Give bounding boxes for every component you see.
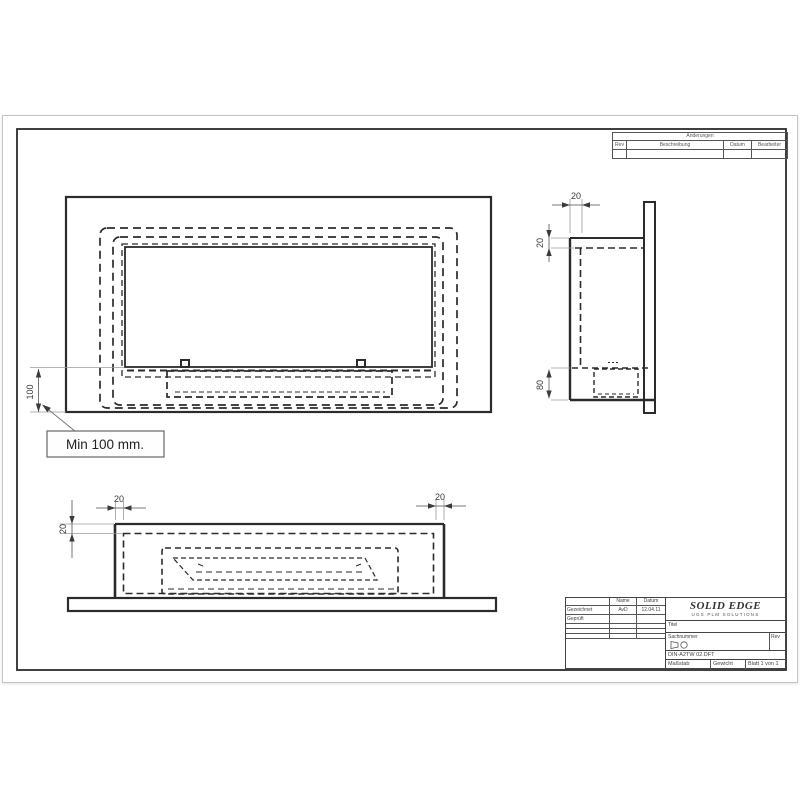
dim-plan-left-20-label: 20	[114, 494, 124, 504]
dim-side-80: 80	[535, 368, 570, 400]
front-left-clip	[181, 360, 189, 367]
drawing-photo: 100 Min 100 mm.	[0, 0, 800, 800]
plan-mark-right	[356, 564, 361, 566]
revision-table-header: Änderungen	[613, 133, 787, 141]
dim-plan-top-20-label: 20	[58, 524, 68, 534]
plan-hidden-inner-wall	[124, 534, 434, 594]
dim-front-100-label: 100	[25, 384, 35, 399]
title-block-approvals: Name Datum Gezeichnet AvD 12.04.11 Geprü…	[566, 598, 666, 668]
side-wall-plate	[644, 202, 655, 413]
revision-col-rev: Rev	[613, 141, 627, 149]
revision-empty-row	[613, 150, 787, 159]
approval-checked-label: Geprüft	[566, 615, 610, 623]
drawing-linework: 100 Min 100 mm.	[0, 0, 800, 800]
drawing-frame	[17, 129, 786, 670]
approval-date-header: Datum	[637, 598, 665, 605]
plan-view	[68, 524, 496, 611]
plan-wall-plate	[68, 598, 496, 611]
front-glass-opening	[125, 247, 432, 367]
document-number-field: Sachnummer Rev	[666, 633, 785, 651]
title-field: Titel	[666, 621, 785, 633]
sheet-number-field: Blatt 1 von 1	[746, 660, 785, 670]
plan-mark-left	[198, 564, 203, 566]
revision-table: Änderungen Rev Beschreibung Datum Bearbe…	[612, 132, 788, 159]
title-block-bottom-row: Maßstab Gewicht Blatt 1 von 1	[666, 660, 785, 670]
callout-text: Min 100 mm.	[66, 437, 144, 452]
logo-area: SOLID EDGE UGS PLM SOLUTIONS	[666, 598, 785, 621]
projection-symbol-icon	[670, 640, 690, 650]
dim-side-top-20: 20	[552, 191, 600, 233]
plan-burner-tray-hidden	[162, 548, 398, 594]
revision-col-desc: Beschreibung	[627, 141, 724, 149]
dim-plan-right-20: 20	[416, 492, 466, 520]
front-hidden-outline-inner	[113, 237, 443, 405]
front-burner-box-hidden	[167, 371, 392, 397]
title-block: Name Datum Gezeichnet AvD 12.04.11 Geprü…	[565, 597, 786, 669]
approval-drawn-label: Gezeichnet	[566, 606, 610, 614]
dim-side-gap-20-label: 20	[535, 238, 545, 248]
scale-field: Maßstab	[666, 660, 711, 670]
approval-name-header: Name	[610, 598, 637, 605]
revision-field: Rev	[769, 633, 785, 650]
dim-plan-right-20-label: 20	[435, 492, 445, 502]
front-outer-panel	[66, 197, 491, 412]
file-name-field: DIN-A2TW 02.DFT	[666, 651, 785, 660]
side-view	[570, 202, 655, 413]
approval-drawn-name: AvD	[610, 606, 637, 614]
approval-drawn-date: 12.04.11	[637, 606, 665, 614]
front-hidden-outline-outer	[100, 228, 457, 408]
side-burner-box-hidden	[594, 369, 638, 397]
logo-subtitle: UGS PLM SOLUTIONS	[666, 612, 785, 618]
front-right-clip	[357, 360, 365, 367]
dim-side-80-label: 80	[535, 380, 545, 390]
title-block-main: SOLID EDGE UGS PLM SOLUTIONS Titel Sachn…	[666, 598, 785, 668]
front-view	[66, 197, 491, 412]
dim-side-top-20-label: 20	[571, 191, 581, 201]
dim-side-gap-20: 20	[535, 224, 574, 262]
dim-plan-left-20: 20	[96, 494, 146, 520]
weight-field: Gewicht	[711, 660, 746, 670]
revision-col-by: Bearbeiter	[752, 141, 787, 149]
plan-burner-insert-hidden	[173, 558, 377, 580]
dim-front-100: 100	[25, 368, 124, 413]
front-hidden-glass-frame	[122, 244, 435, 377]
revision-col-date: Datum	[724, 141, 752, 149]
solid-edge-logo: SOLID EDGE	[666, 600, 785, 612]
